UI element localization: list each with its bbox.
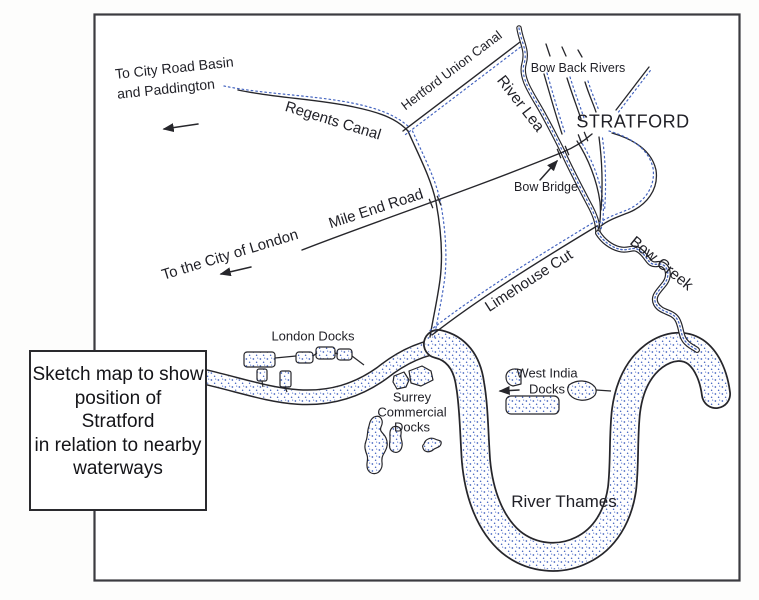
caption-line: position of [31,387,205,411]
label-west-india-docks: West India Docks [516,366,577,397]
caption-line: Stratford [31,410,205,434]
caption-line: in relation to nearby [31,434,205,458]
caption-box: Sketch map to show position of Stratford… [29,350,207,511]
sketch-map: To City Road Basin and Paddington Regent… [0,0,759,600]
caption-line: waterways [31,457,205,481]
label-london-docks: London Docks [271,330,354,345]
label-bow-bridge: Bow Bridge [514,180,578,194]
label-river-thames: River Thames [511,492,617,512]
label-stratford: STRATFORD [576,112,689,133]
label-bow-back-rivers: Bow Back Rivers [531,61,625,75]
caption-line: Sketch map to show [31,363,205,387]
label-surrey-commercial-docks: Surrey Commercial Docks [377,390,446,435]
